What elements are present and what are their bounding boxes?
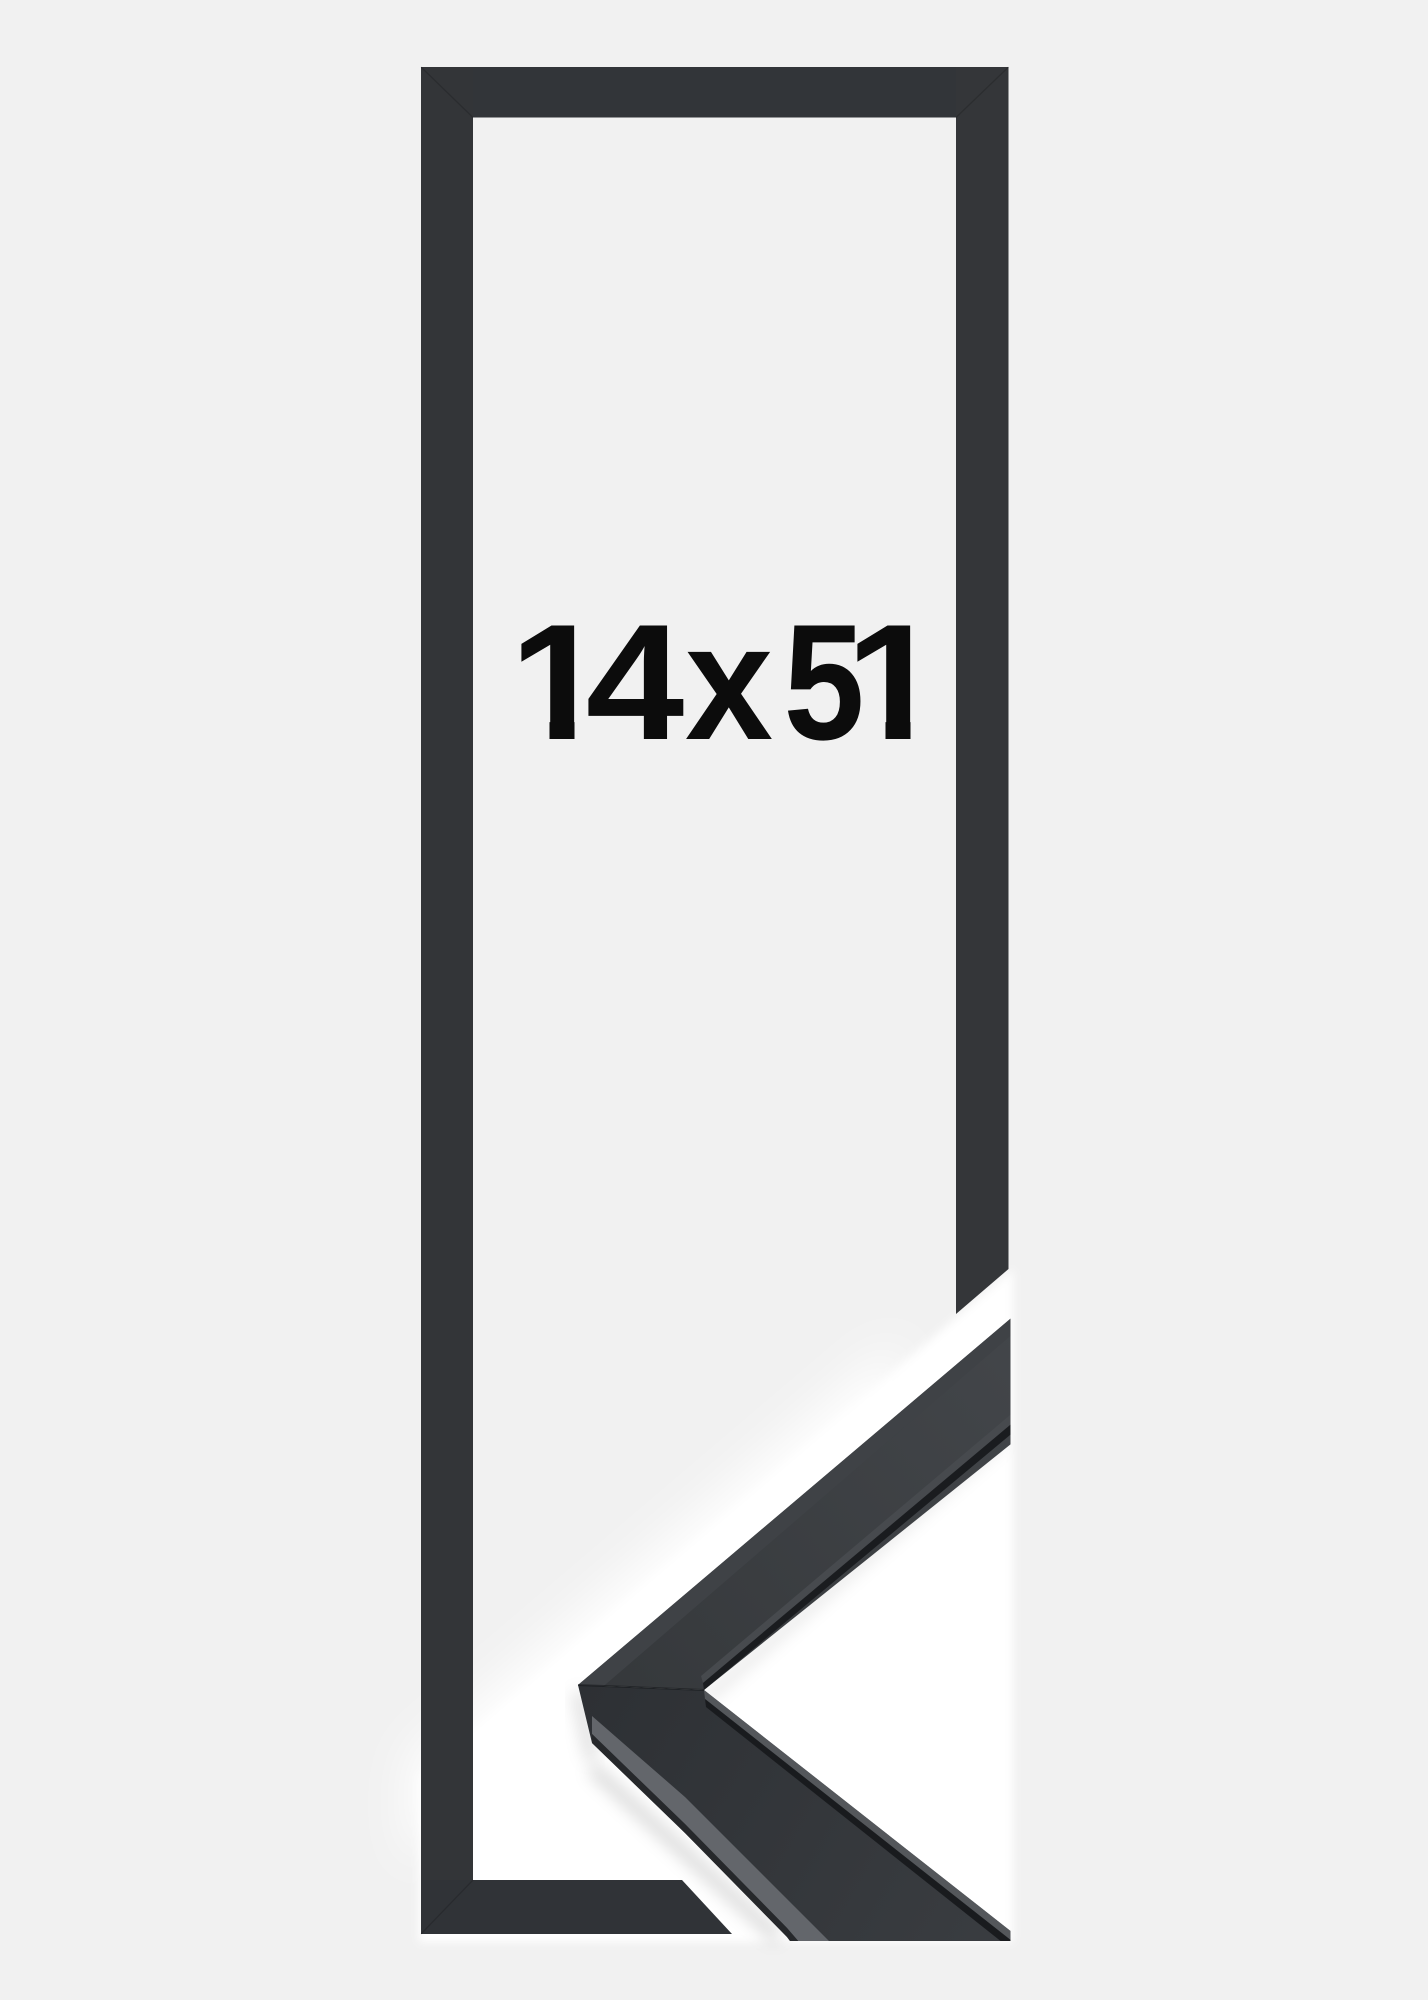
svg-text:4: 4 bbox=[586, 590, 685, 774]
svg-text:x: x bbox=[685, 590, 773, 774]
